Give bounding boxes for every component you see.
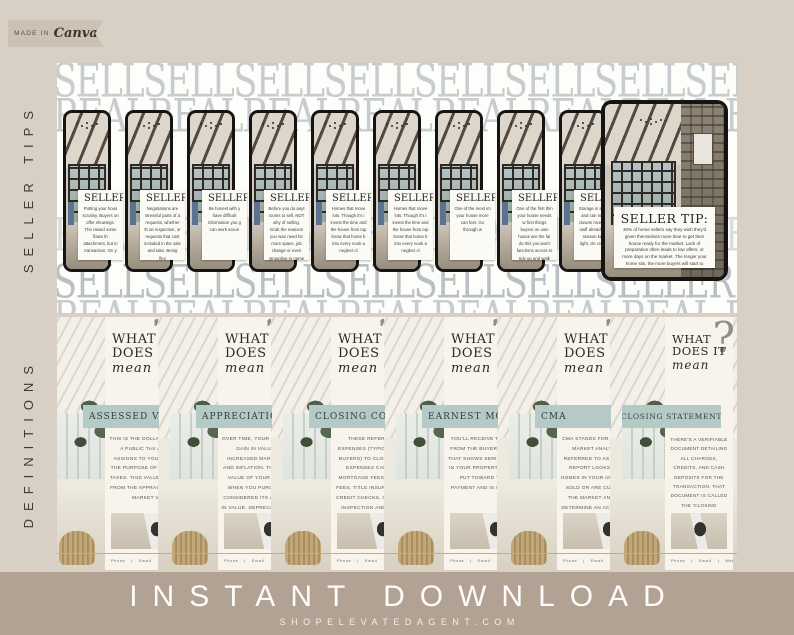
term-text: CLOSING COSTS <box>309 412 385 422</box>
heading-line2: DOES IT <box>451 347 497 361</box>
card-footer: Phone|Email|Website <box>671 558 731 563</box>
bg-text-row: REALREALREALREALREALREALREAL ESTATE <box>57 296 737 313</box>
tip-text: Be honest with y have difficult informat… <box>204 204 245 234</box>
card-footer: Phone|Email|Website <box>337 558 382 563</box>
heading-line2: DOES IT <box>112 347 158 361</box>
footer-divider: | <box>691 558 693 563</box>
definition-text: THIS IS THE DOLLAR VALUE THAT A PUBLIC T… <box>108 435 158 504</box>
ceiling-beams <box>438 113 480 168</box>
agent-photo <box>450 513 497 549</box>
ceiling-beams <box>128 113 170 168</box>
definition-card-tile: ? WHATDOES ITmean CMA STANDS FOR COMPARA… <box>509 317 622 570</box>
card-heading: WHATDOES ITmean <box>338 333 384 376</box>
footer-phone: Phone <box>224 558 238 563</box>
phone-mockup: SELLER TIP:Homes that move lots. Though … <box>311 110 359 272</box>
rattan-table <box>285 531 321 565</box>
heading-script: mean <box>338 362 384 376</box>
footer-divider-line <box>509 553 622 554</box>
definition-card-tile: ? WHATDOES ITmean THESE REFER TO MISC. E… <box>283 317 396 570</box>
instant-download-title: INSTANT DOWNLOAD <box>114 580 680 614</box>
tip-heading: SELLER TIP: <box>204 193 245 204</box>
tip-text: One of the most im your house more can f… <box>452 204 493 234</box>
heading-line2: DOES IT <box>225 347 271 361</box>
card-footer: Phone|Email|Website <box>450 558 495 563</box>
heading-line2: DOES IT <box>338 347 384 361</box>
tip-text: One of the first thin your house needs w… <box>514 204 555 260</box>
term-banner: APPRECIATION <box>196 405 272 428</box>
tip-heading: SELLER TIP: <box>142 193 183 204</box>
ceiling-beams <box>562 113 604 168</box>
footer-divider-line <box>396 553 509 554</box>
seller-tip-card: SELLER TIP:Homes that move lots. Though … <box>326 190 371 260</box>
seller-tip-card: SELLER TIP:Be honest with y have difficu… <box>202 190 247 260</box>
phone-mockup: SELLER TIP:Homes that move lots. Though … <box>373 110 421 272</box>
card-footer: Phone|Email|Website <box>224 558 269 563</box>
definition-card: ? WHATDOES ITmean THERE'S A VERIFIABLE D… <box>665 317 733 570</box>
term-banner: ASSESSED VALUE <box>83 405 159 428</box>
definition-text: CMA STANDS FOR COMPARATIVE MARKET ANALYS… <box>560 435 610 523</box>
phone-mockup: SELLER TIP:Be honest with y have difficu… <box>187 110 235 272</box>
tip-heading: SELLER TIP: <box>514 193 555 204</box>
phone-mockup: SELLER TIP:Putting your hous scrutiny. B… <box>63 110 111 272</box>
footer-email: Email <box>365 558 378 563</box>
wall-art <box>440 202 447 225</box>
seller-tip-card: SELLER TIP:Before you do anyt rooms to s… <box>264 190 309 260</box>
rattan-table <box>398 531 434 565</box>
footer-phone: Phone <box>450 558 464 563</box>
ceiling-beams <box>66 113 108 168</box>
footer-email: Email <box>478 558 491 563</box>
wall-art <box>378 202 385 225</box>
term-text: CMA <box>535 412 567 422</box>
seller-tip-card: SELLER TIP:Putting your hous scrutiny. B… <box>78 190 123 260</box>
made-in-canva-badge: MADE IN Canva <box>8 20 104 47</box>
footer-divider: | <box>470 558 472 563</box>
card-heading: WHATDOES ITmean <box>451 333 497 376</box>
card-heading: WHATDOES ITmean <box>225 333 271 376</box>
wall-art <box>192 202 199 225</box>
card-footer: Phone|Email|Website <box>111 558 156 563</box>
heading-script: mean <box>112 362 158 376</box>
seller-tips-side-label: SELLER TIPS <box>12 63 44 313</box>
seller-tips-label-text: SELLER TIPS <box>21 103 36 273</box>
phone-mockup: SELLER TIP:Before you do anyt rooms to s… <box>249 110 297 272</box>
term-banner: EARNEST MONEY <box>422 405 498 428</box>
ceiling-beams <box>376 113 418 168</box>
wall-art <box>254 202 261 225</box>
phone-mockup: SELLER TIP:Negotiations are stressful pa… <box>125 110 173 272</box>
listing-image: MADE IN Canva SELLER TIPS DEFINITIONS SE… <box>0 0 794 635</box>
heading-line1: WHAT <box>451 333 497 347</box>
footer-website: Website <box>725 558 733 563</box>
footer-email: Email <box>252 558 265 563</box>
footer-email: Email <box>139 558 152 563</box>
term-banner: CLOSING STATEMENT <box>622 405 721 428</box>
tip-heading: SELLER TIP: <box>80 193 121 204</box>
definition-card-tile: ? WHATDOES ITmean THIS IS THE DOLLAR VAL… <box>57 317 170 570</box>
definition-text: THERE'S A VERIFIABLE DOCUMENT DETAILING … <box>668 435 730 520</box>
phone-mockup: SELLER TIP:One of the first thin your ho… <box>497 110 545 272</box>
heading-line2: DOES IT <box>672 345 726 357</box>
footer-divider: | <box>357 558 359 563</box>
definition-card-tile: ? WHATDOES ITmean OVER TIME, YOUR HOME S… <box>170 317 283 570</box>
card-heading: WHATDOES ITmean <box>112 333 158 376</box>
tip-heading: SELLER TIP: <box>452 193 493 204</box>
rattan-table <box>624 531 660 565</box>
heading-line1: WHAT <box>564 333 610 347</box>
canva-logo: Canva <box>54 26 98 41</box>
footer-email: Email <box>699 558 712 563</box>
tip-text: Putting your hous scrutiny. Buyers on of… <box>80 204 121 256</box>
heading-script: mean <box>451 362 497 376</box>
rattan-table <box>59 531 95 565</box>
tip-heading: SELLER TIP: <box>390 193 431 204</box>
seller-tips-panel: SELLSELLSELLSELLSELLSELLSELLSELLER TIP R… <box>57 63 737 313</box>
wall-art <box>316 202 323 225</box>
seller-tip-card: SELLER TIP:Homes that move lots. Though … <box>388 190 433 260</box>
rattan-table <box>172 531 208 565</box>
footer-phone: Phone <box>111 558 125 563</box>
footer-divider-line <box>622 553 737 554</box>
footer-divider-line <box>57 553 170 554</box>
definitions-label-text: DEFINITIONS <box>21 358 36 528</box>
footer-divider: | <box>244 558 246 563</box>
card-heading: WHATDOES ITmean <box>672 333 726 372</box>
agent-photo <box>337 513 384 549</box>
wall-art <box>564 202 571 225</box>
seller-tip-card: SELLER TIP:One of the first thin your ho… <box>512 190 557 260</box>
footer-divider: | <box>583 558 585 563</box>
featured-seller-tip-card: SELLER TIP: 30% of home sellers say they… <box>614 207 715 268</box>
card-footer: Phone|Email|Website <box>563 558 608 563</box>
definition-text: OVER TIME, YOUR HOME SHOULD GAIN IN VALU… <box>221 435 271 523</box>
agent-photo <box>224 513 271 549</box>
term-text: EARNEST MONEY <box>422 412 498 422</box>
rattan-table <box>511 531 547 565</box>
heading-script: mean <box>564 362 610 376</box>
footer-divider-line <box>170 553 283 554</box>
definition-card: ? WHATDOES ITmean OVER TIME, YOUR HOME S… <box>218 317 271 570</box>
definition-card-tile: ? WHATDOES ITmean YOU'LL RECEIVE THIS PA… <box>396 317 509 570</box>
wall-art <box>130 202 137 225</box>
term-banner: CLOSING COSTS <box>309 405 385 428</box>
footer-phone: Phone <box>337 558 351 563</box>
tip-heading: SELLER TIP: <box>328 193 369 204</box>
footer-divider: | <box>131 558 133 563</box>
definition-card: ? WHATDOES ITmean YOU'LL RECEIVE THIS PA… <box>444 317 497 570</box>
footer-phone: Phone <box>671 558 685 563</box>
phone-mockup: SELLER TIP:One of the most im your house… <box>435 110 483 272</box>
featured-tablet-mockup: SELLER TIP: 30% of home sellers say they… <box>601 100 728 281</box>
seller-tip-card: SELLER TIP:One of the most im your house… <box>450 190 495 260</box>
term-text: CLOSING STATEMENT <box>622 412 721 421</box>
definition-text: THESE REFER TO MISC. EXPENSES (TYPICALLY… <box>334 435 384 523</box>
phone-mockup: SELLER TIP:Storage is somethi and can ne… <box>559 110 607 272</box>
card-heading: WHATDOES ITmean <box>564 333 610 376</box>
definition-card-tile-featured: ? WHATDOES ITmean THERE'S A VERIFIABLE D… <box>622 317 737 570</box>
tip-text: Homes that move lots. Though it's i inve… <box>328 204 369 256</box>
agent-photo <box>563 513 610 549</box>
wall-art <box>502 202 509 225</box>
ceiling-beams <box>314 113 356 168</box>
heading-line1: WHAT <box>338 333 384 347</box>
definition-card: ? WHATDOES ITmean THESE REFER TO MISC. E… <box>331 317 384 570</box>
agent-photo <box>111 513 158 549</box>
tip-text: Homes that move lots. Though it's i inve… <box>390 204 431 256</box>
heading-script: mean <box>225 362 271 376</box>
shop-website-url: SHOPELEVATEDAGENT.COM <box>274 617 520 627</box>
definition-card: ? WHATDOES ITmean THIS IS THE DOLLAR VAL… <box>105 317 158 570</box>
definitions-side-label: DEFINITIONS <box>12 317 44 570</box>
footer-divider: | <box>718 558 720 563</box>
tip-text: Before you do anyt rooms to sell, NOT wh… <box>266 204 307 260</box>
seller-tip-card: SELLER TIP:Negotiations are stressful pa… <box>140 190 185 260</box>
heading-line1: WHAT <box>112 333 158 347</box>
footer-email: Email <box>591 558 604 563</box>
tip-text: Negotiations are stressful parts of a re… <box>142 204 183 260</box>
term-text: ASSESSED VALUE <box>83 412 159 422</box>
definition-text: YOU'LL RECEIVE THIS PAYMENT FROM THE BUY… <box>447 435 497 494</box>
ceiling-beams <box>252 113 294 168</box>
definition-card: ? WHATDOES ITmean CMA STANDS FOR COMPARA… <box>557 317 610 570</box>
heading-script: mean <box>672 359 726 372</box>
ceiling-beams <box>190 113 232 168</box>
tip-text: 30% of home sellers say they wish they'd… <box>619 226 710 268</box>
tip-heading: SELLER TIP: <box>619 211 710 226</box>
tip-heading: SELLER TIP: <box>266 193 307 204</box>
definitions-panel: ? WHATDOES ITmean THIS IS THE DOLLAR VAL… <box>57 317 737 570</box>
term-banner: CMA <box>535 405 611 428</box>
mirror <box>693 133 713 164</box>
footer-phone: Phone <box>563 558 577 563</box>
agent-photo <box>671 513 727 549</box>
ceiling-beams <box>500 113 542 168</box>
heading-line1: WHAT <box>225 333 271 347</box>
made-in-label: MADE IN <box>14 30 50 37</box>
wall-art <box>68 202 75 225</box>
instant-download-bar: INSTANT DOWNLOAD SHOPELEVATEDAGENT.COM <box>0 572 794 635</box>
term-text: APPRECIATION <box>196 412 272 422</box>
heading-line2: DOES IT <box>564 347 610 361</box>
footer-divider-line <box>283 553 396 554</box>
